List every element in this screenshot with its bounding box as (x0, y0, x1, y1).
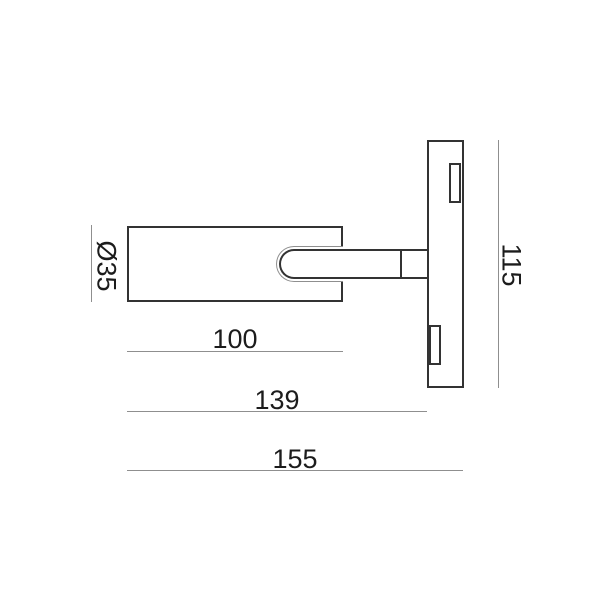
technical-drawing-canvas: Ø35 115 100 139 155 (0, 0, 600, 600)
dimension-label-plate-height: 115 (498, 243, 525, 286)
swivel-arm-outline (279, 249, 427, 279)
dimension-label-total-length: 155 (127, 446, 463, 473)
dimension-label-diameter: Ø35 (93, 240, 120, 291)
dimension-label-body-length: 100 (127, 326, 343, 353)
dimension-label-mount-depth: 139 (127, 387, 427, 414)
switch-cutout-bottom (429, 325, 441, 365)
arm-joint-line (400, 251, 402, 277)
switch-cutout-top (449, 163, 461, 203)
